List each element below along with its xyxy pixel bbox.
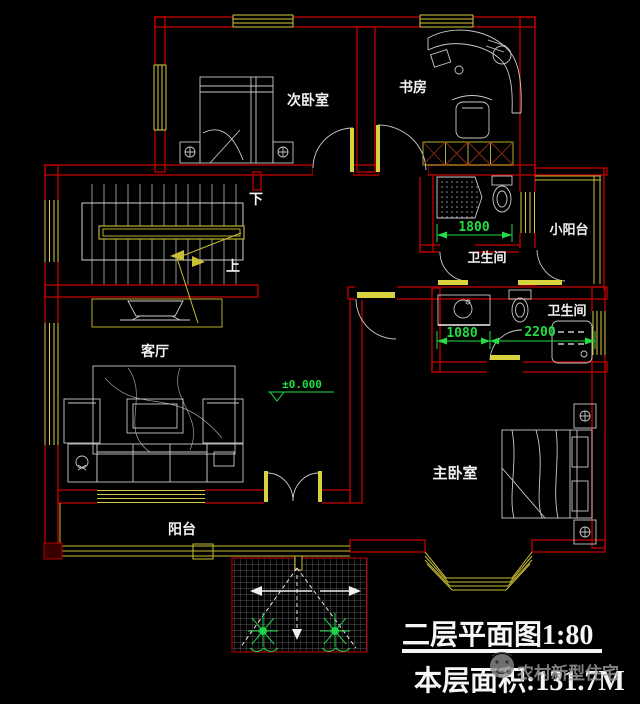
door-leaf-study bbox=[376, 125, 380, 172]
roof-center-post bbox=[295, 556, 302, 570]
plan-title-text: 二层平面图1:80 bbox=[402, 620, 593, 651]
label-secondary-bedroom: 次卧室 bbox=[287, 92, 329, 109]
door-sill-small-balcony bbox=[518, 280, 562, 285]
floor-plan-drawing: 下 上 bbox=[0, 0, 640, 704]
stair-down-label: 下 bbox=[249, 192, 263, 208]
floor-plan-canvas: 下 上 bbox=[0, 0, 640, 704]
shower-bath1 bbox=[437, 177, 482, 218]
stair-up-label: 上 bbox=[226, 259, 240, 275]
dim-text-1800: 1800 bbox=[458, 220, 489, 235]
door-leaf-french-left bbox=[264, 471, 268, 502]
watermark-text: 农村新型住宅 bbox=[516, 663, 619, 684]
watermark-logo-icon bbox=[490, 654, 514, 678]
door-leaf-master bbox=[357, 292, 395, 298]
door-sill-bath1 bbox=[438, 280, 468, 285]
label-bathroom-upper: 卫生间 bbox=[467, 250, 506, 266]
door-leaf-french-right bbox=[318, 471, 322, 502]
label-balcony: 阳台 bbox=[168, 521, 196, 538]
door-leaf-bath2 bbox=[490, 355, 520, 360]
elevation-text: ±0.000 bbox=[282, 378, 322, 391]
label-master-bedroom: 主卧室 bbox=[432, 464, 477, 482]
door-leaf-secondary-bedroom bbox=[350, 128, 354, 172]
label-study: 书房 bbox=[399, 79, 427, 96]
balcony-corner-post bbox=[44, 543, 62, 559]
dim-text-2200: 2200 bbox=[524, 325, 555, 340]
label-small-balcony: 小阳台 bbox=[549, 222, 588, 238]
label-living-room: 客厅 bbox=[140, 343, 169, 360]
porch-roof bbox=[232, 556, 367, 652]
dim-text-1080: 1080 bbox=[446, 326, 477, 341]
stair-handrail-outer bbox=[99, 226, 244, 239]
label-bathroom-lower: 卫生间 bbox=[547, 303, 586, 319]
